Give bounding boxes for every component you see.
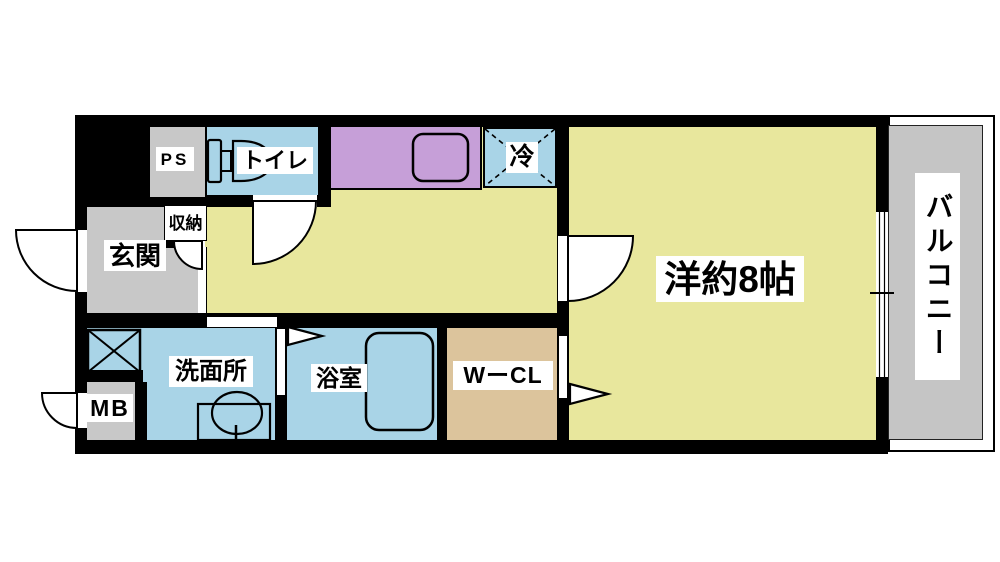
genkan-step-opening <box>198 247 207 313</box>
label-balcony: バルコニー <box>915 173 960 380</box>
toilet-door-gap <box>253 195 317 207</box>
bathroom-door-gap <box>276 328 286 396</box>
wall-middle-horizontal <box>75 313 569 328</box>
washroom-door-gap <box>206 316 278 328</box>
label-toilet: トイレ <box>237 147 313 174</box>
balcony-window-gap <box>876 212 888 377</box>
wall-bathroom-wcl <box>437 328 447 454</box>
floor-plan: PS トイレ 冷 玄関 収納 洗面所 浴室 WーCL 洋約8帖 MB バルコニー <box>0 0 1000 562</box>
label-washroom: 洗面所 <box>169 356 253 387</box>
mb-door-gap <box>75 393 87 428</box>
label-genkan: 玄関 <box>104 240 166 271</box>
label-meter-box: MB <box>87 394 133 422</box>
label-ps: PS <box>156 147 194 171</box>
wall-toilet-right <box>318 115 331 207</box>
wall-main-left-upper <box>557 115 569 235</box>
entrance-door-gap <box>75 230 87 292</box>
wcl-door-gap <box>558 335 568 399</box>
label-fridge: 冷 <box>506 142 538 173</box>
label-main-room: 洋約8帖 <box>656 256 804 302</box>
label-walk-in-closet: WーCL <box>453 361 553 390</box>
wall-mb-right <box>135 382 147 454</box>
wall-mb-top <box>75 370 143 382</box>
kitchen-counter <box>329 123 482 190</box>
mb-door-swing-arc <box>42 393 77 428</box>
label-bathroom: 浴室 <box>311 364 367 392</box>
label-closet: 収納 <box>166 212 205 234</box>
wall-bottom <box>75 440 888 454</box>
entrance-door-swing-arc <box>16 230 77 291</box>
main-room-door-gap <box>557 235 569 302</box>
